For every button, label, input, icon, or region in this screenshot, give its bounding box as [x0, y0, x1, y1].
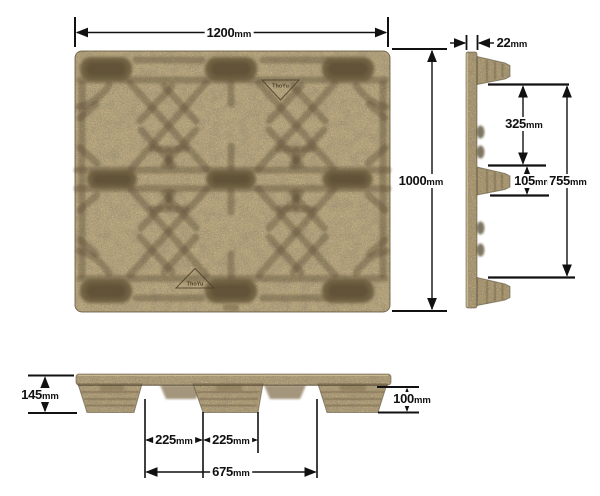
- dim-label-fork-opening: 325mm: [503, 117, 545, 131]
- dim-label-gap-right: 225mm: [210, 433, 252, 447]
- dim-label-width: 1000mm: [397, 174, 446, 188]
- dim-label-bottom-span: 675mm: [210, 465, 252, 479]
- side-view: [466, 52, 510, 308]
- dim-label-overall-height: 145mm: [19, 388, 61, 402]
- dim-label-gap-left: 225mm: [153, 433, 195, 447]
- dim-label-length: 1200mm: [205, 26, 254, 40]
- dim-deck-thickness: [450, 35, 494, 50]
- brand-text: ThoYu: [272, 84, 289, 90]
- top-view: ThoYu ThoYu: [75, 51, 390, 312]
- front-view: [76, 374, 391, 413]
- dim-label-inner-span: 755mm: [547, 174, 589, 188]
- dim-label-foot-height: 100mm: [391, 392, 433, 406]
- drawing-canvas: ThoYu ThoYu: [0, 0, 600, 496]
- brand-text: ThoYu: [187, 282, 204, 288]
- edge-notch: [223, 304, 239, 311]
- pallet-drawing: ThoYu ThoYu: [0, 0, 600, 496]
- dim-label-deck-thickness: 22mm: [495, 36, 530, 50]
